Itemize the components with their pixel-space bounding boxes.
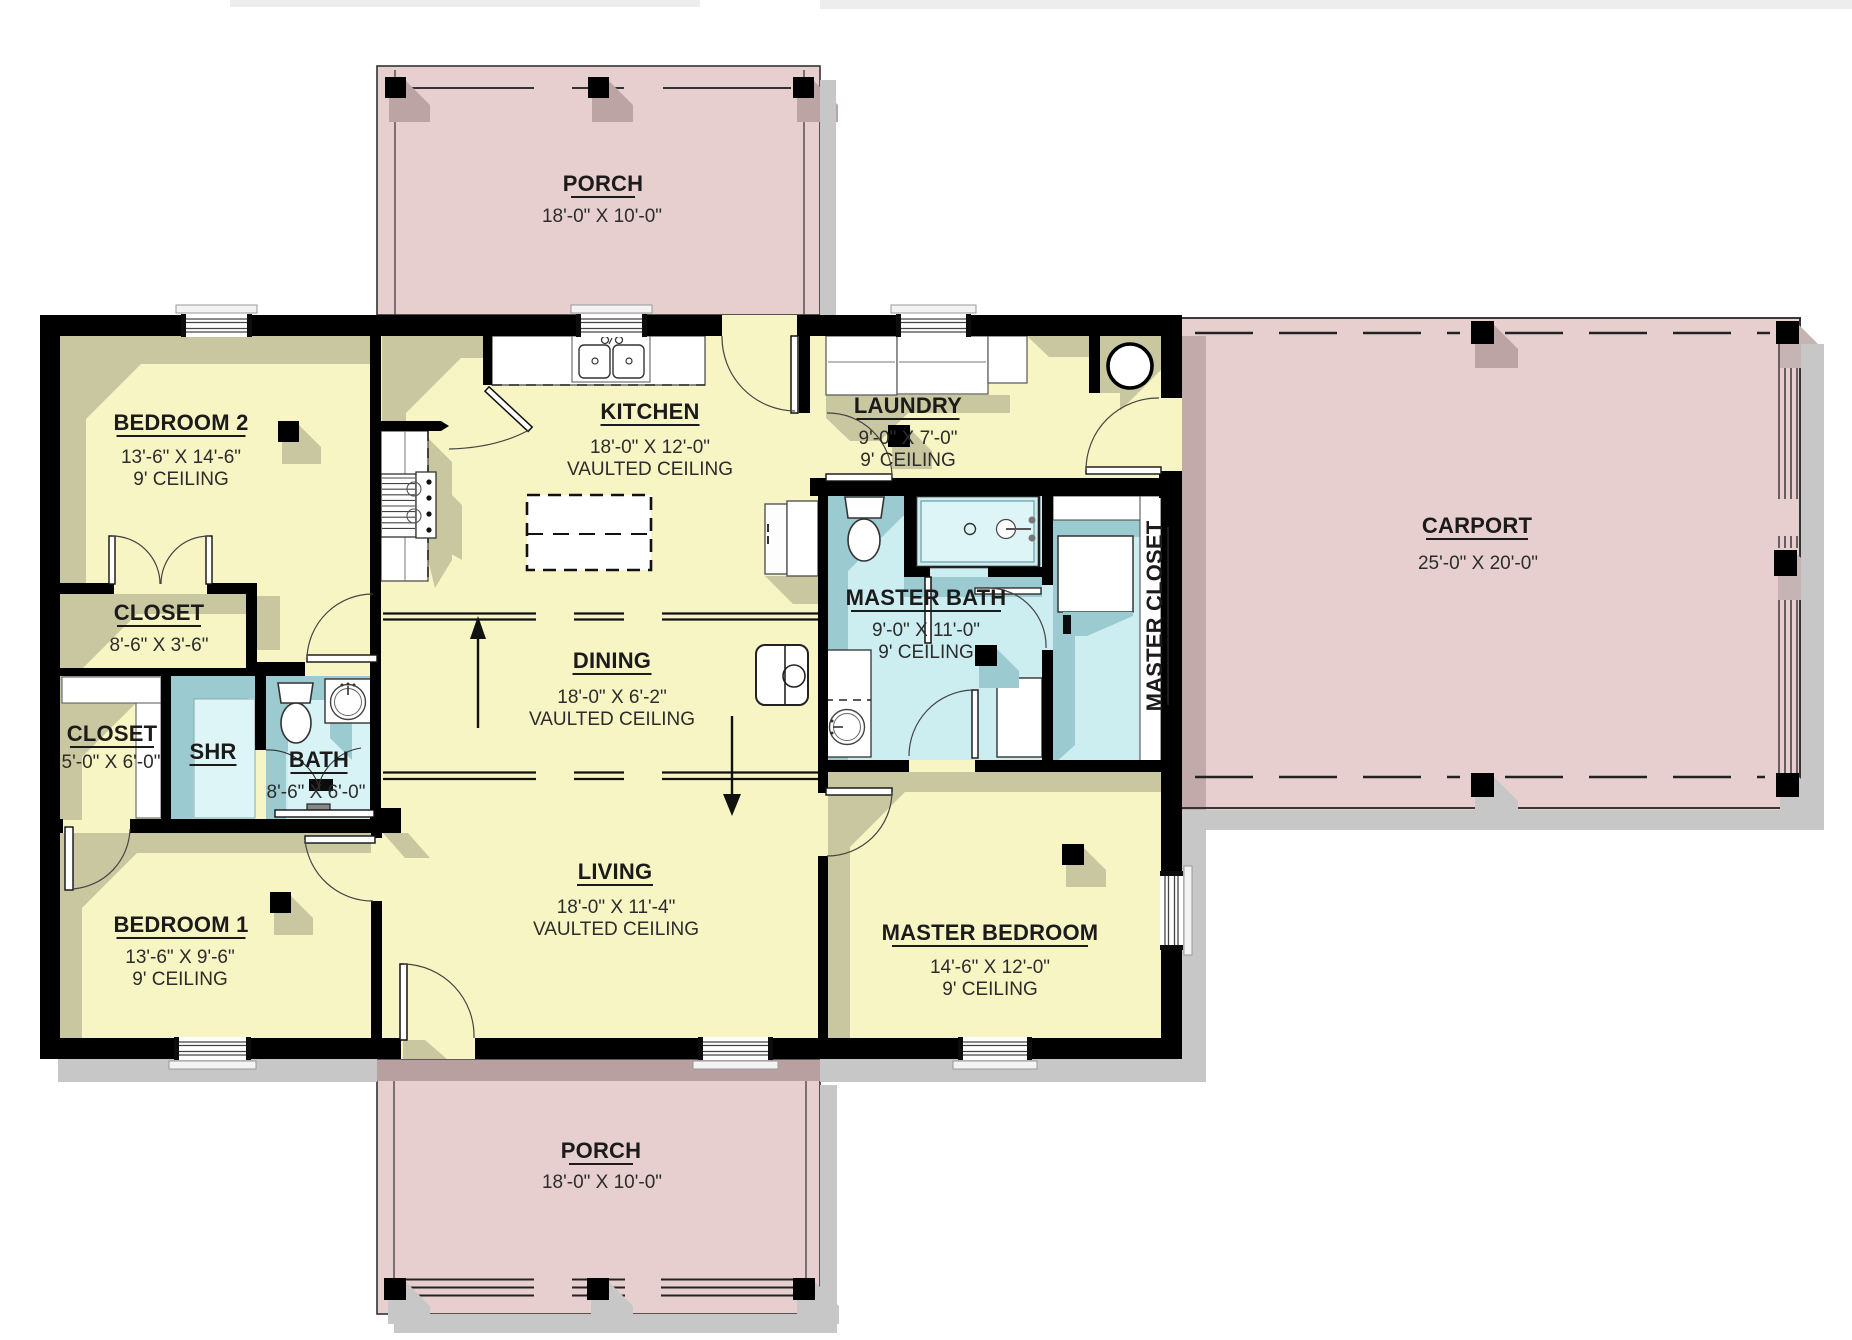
svg-text:MASTER BATH: MASTER BATH (846, 585, 1007, 610)
svg-text:18'-0" X 12'-0": 18'-0" X 12'-0" (590, 437, 710, 458)
svg-text:9' CEILING: 9' CEILING (942, 979, 1038, 1000)
svg-text:9' CEILING: 9' CEILING (132, 969, 228, 990)
svg-text:BEDROOM 1: BEDROOM 1 (113, 912, 248, 937)
svg-text:5'-0" X 6'-0": 5'-0" X 6'-0" (62, 752, 161, 773)
svg-text:PORCH: PORCH (563, 171, 643, 196)
svg-text:9' CEILING: 9' CEILING (878, 642, 974, 663)
svg-text:CARPORT: CARPORT (1422, 513, 1533, 538)
svg-text:9' CEILING: 9' CEILING (133, 469, 229, 490)
svg-text:LIVING: LIVING (578, 859, 653, 884)
svg-text:CLOSET: CLOSET (114, 600, 205, 625)
svg-text:18'-0" X 11'-4": 18'-0" X 11'-4" (557, 897, 676, 918)
svg-text:VAULTED CEILING: VAULTED CEILING (567, 459, 733, 480)
svg-text:25'-0" X 20'-0": 25'-0" X 20'-0" (1418, 553, 1538, 574)
svg-text:13'-6" X 9'-6": 13'-6" X 9'-6" (125, 947, 234, 968)
svg-text:PORCH: PORCH (561, 1138, 641, 1163)
svg-text:KITCHEN: KITCHEN (600, 399, 699, 424)
svg-text:LAUNDRY: LAUNDRY (854, 393, 962, 418)
svg-text:9'-0" X 7'-0": 9'-0" X 7'-0" (859, 428, 958, 449)
svg-text:18'-0" X 10'-0": 18'-0" X 10'-0" (542, 206, 662, 227)
svg-text:SHR: SHR (189, 739, 236, 764)
svg-text:MASTER BEDROOM: MASTER BEDROOM (882, 920, 1099, 945)
svg-text:MASTER CLOSET: MASTER CLOSET (1142, 520, 1167, 711)
svg-text:9'-0" X 11'-0": 9'-0" X 11'-0" (872, 620, 980, 641)
svg-text:14'-6" X 12'-0": 14'-6" X 12'-0" (930, 957, 1050, 978)
svg-text:13'-6" X 14'-6": 13'-6" X 14'-6" (121, 447, 241, 468)
svg-text:8'-6" X 6'-0": 8'-6" X 6'-0" (267, 782, 366, 803)
svg-text:CLOSET: CLOSET (67, 721, 158, 746)
svg-text:BATH: BATH (289, 747, 349, 772)
svg-text:9' CEILING: 9' CEILING (860, 450, 956, 471)
svg-text:DINING: DINING (573, 648, 651, 673)
svg-text:VAULTED CEILING: VAULTED CEILING (529, 709, 695, 730)
svg-text:8'-6" X 3'-6": 8'-6" X 3'-6" (110, 635, 209, 656)
svg-text:18'-0" X 10'-0": 18'-0" X 10'-0" (542, 1172, 662, 1193)
svg-text:BEDROOM 2: BEDROOM 2 (113, 410, 248, 435)
svg-text:VAULTED CEILING: VAULTED CEILING (533, 919, 699, 940)
svg-text:18'-0" X 6'-2": 18'-0" X 6'-2" (557, 687, 666, 708)
